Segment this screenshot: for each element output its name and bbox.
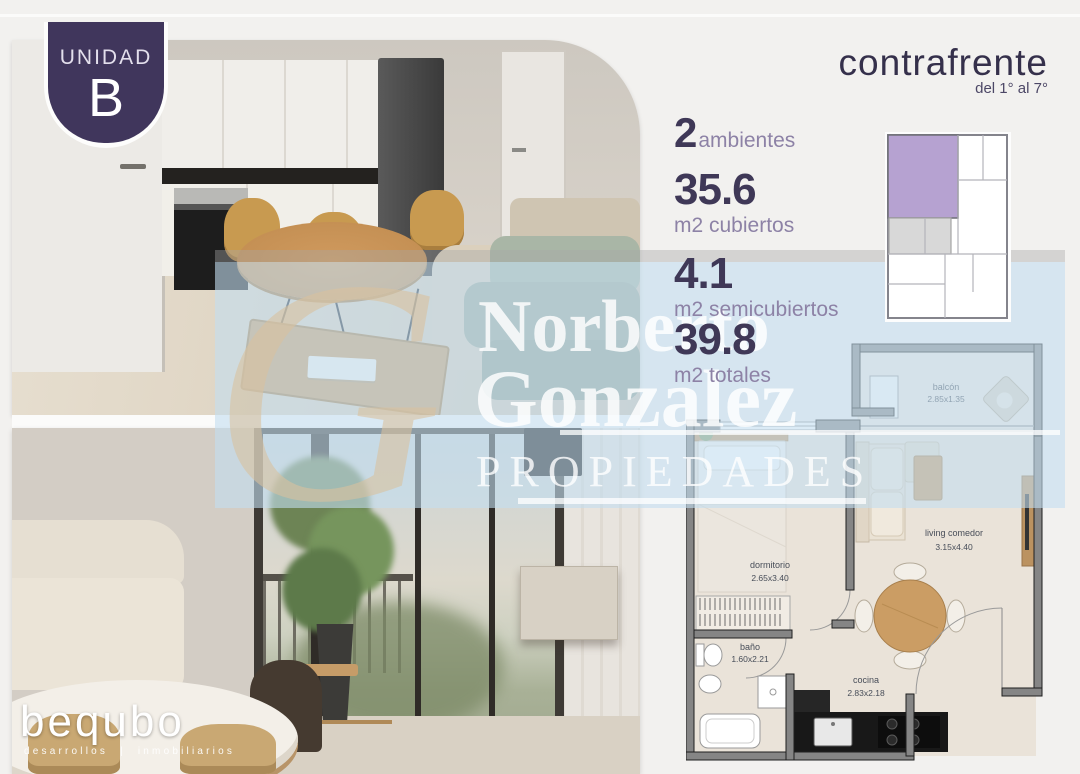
stat-ambientes: 2ambientes [674, 112, 795, 154]
unit-badge-background: UNIDAD B [48, 22, 164, 143]
room-label-cocina: cocina [853, 675, 879, 685]
stat-value: 35.6 [674, 168, 794, 212]
top-page-edge-photo [0, 0, 1080, 17]
stat-m2-totales: 39.8 m2 totales [674, 318, 771, 387]
stat-label: ambientes [698, 129, 795, 152]
building-locator-plan [885, 132, 1011, 322]
room-label-bano: baño [740, 642, 760, 652]
photo1-upper-cabinets [162, 60, 414, 172]
bequbo-wordmark: bequbo [20, 700, 280, 744]
stat-value: 2 [674, 109, 696, 156]
photo2-sofa-back [12, 520, 184, 584]
stat-label: m2 cubiertos [674, 214, 794, 237]
photo1-sofa-cushion [464, 282, 640, 348]
photo1-sofa-cushion [482, 340, 640, 400]
living-coffee-table [914, 456, 942, 500]
locator-unit-b-highlight [888, 135, 958, 218]
bequbo-logo: bequbo desarrollos | inmobiliarios [20, 700, 280, 757]
brochure-page: bequbo desarrollos | inmobiliarios UNIDA… [0, 0, 1080, 774]
room-label-balcon: balcón [933, 382, 960, 392]
room-dims-balcon: 2.85x1.35 [927, 394, 965, 404]
photo1-dining-table [237, 222, 427, 300]
photo2-floating-cabinet [520, 566, 618, 640]
photo2-plant-foliage [282, 548, 362, 632]
photo-divider [12, 415, 640, 428]
room-dims-bano: 1.60x2.21 [731, 654, 769, 664]
closet [696, 596, 790, 630]
unit-badge-label: UNIDAD [48, 46, 164, 70]
room-dims-cocina: 2.83x2.18 [847, 688, 885, 698]
photo1-countertop [162, 168, 414, 184]
photo1-right-door-handle [512, 148, 526, 152]
unit-floorplan: balcón 2.85x1.35 dormitorio 2.65x3.40 li… [686, 342, 1050, 774]
photo2-tv [524, 428, 582, 476]
photo1-left-door-handle [120, 164, 146, 169]
room-dims-dormitorio: 2.65x3.40 [751, 573, 789, 583]
stat-m2-semicubiertos: 4.1 m2 semicubiertos [674, 252, 839, 321]
locator-core [889, 218, 951, 254]
photo2-sofa-seat [12, 578, 184, 690]
photo-dining-balcony: bequbo desarrollos | inmobiliarios [12, 428, 640, 774]
stat-label: m2 totales [674, 364, 771, 387]
room-label-living: living comedor [925, 528, 983, 538]
tv-unit [1022, 476, 1034, 566]
stat-value: 4.1 [674, 252, 839, 296]
photo1-chair [410, 190, 464, 250]
unit-badge: UNIDAD B [44, 22, 168, 148]
stat-value: 39.8 [674, 318, 771, 362]
unit-badge-letter: B [48, 70, 164, 127]
page-title: contrafrente [839, 42, 1048, 84]
room-dims-living: 3.15x4.40 [935, 542, 973, 552]
page-subtitle: del 1° al 7° [975, 80, 1048, 97]
stat-m2-cubiertos: 35.6 m2 cubiertos [674, 168, 794, 237]
room-label-dormitorio: dormitorio [750, 560, 790, 570]
photo1-book [307, 356, 376, 382]
bequbo-tagline: desarrollos | inmobiliarios [24, 746, 280, 757]
